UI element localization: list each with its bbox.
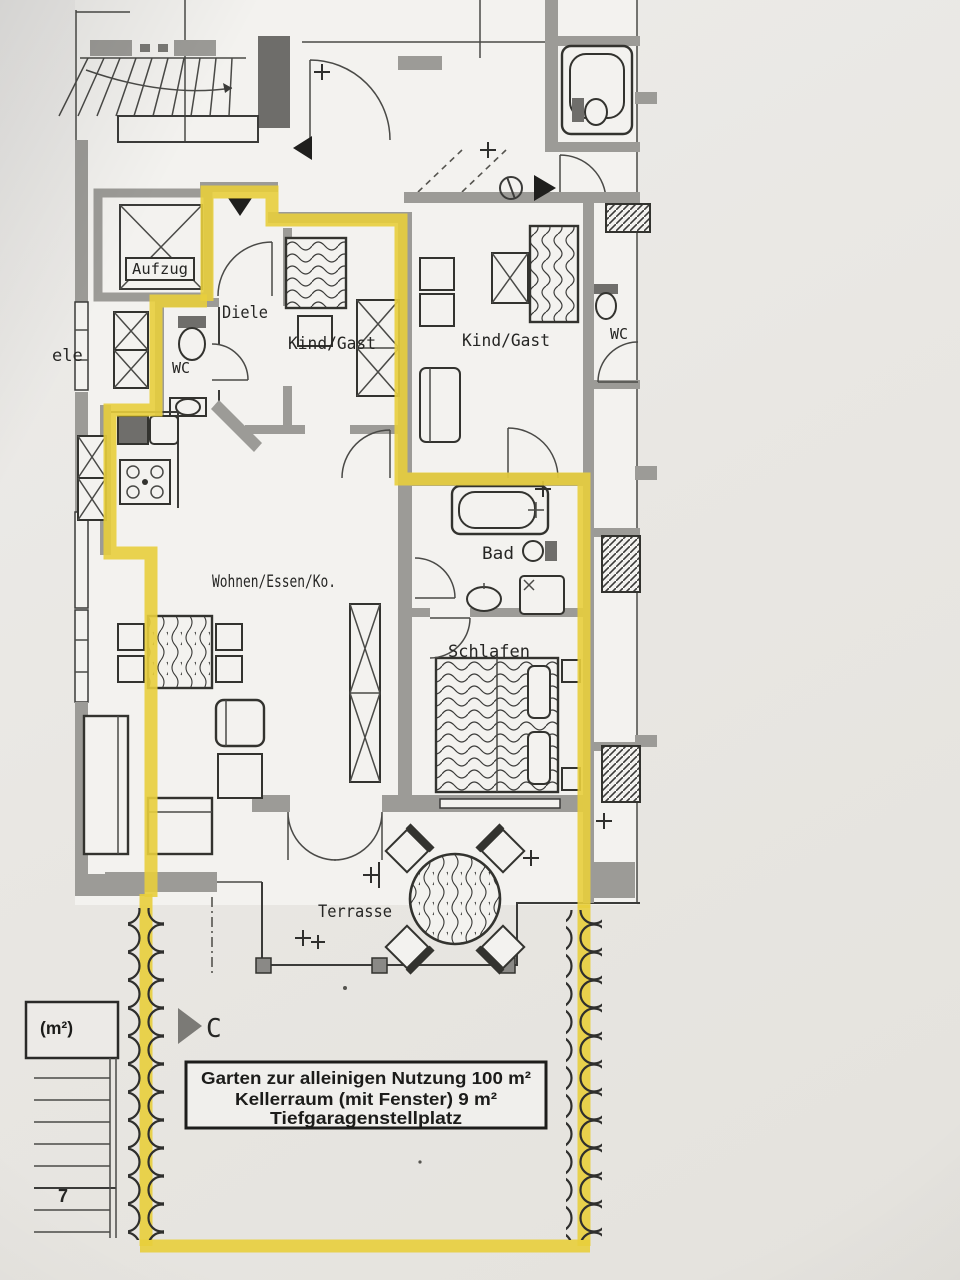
radiator-icon <box>602 536 640 592</box>
room-label-wc-left: WC <box>172 359 190 377</box>
stair-step-number: 7 <box>58 1186 68 1206</box>
info-box: Garten zur alleinigen Nutzung 100 m² Kel… <box>186 1062 546 1128</box>
round-table-icon <box>410 854 500 944</box>
info-line-tiefgarage: Tiefgaragenstellplatz <box>270 1108 462 1128</box>
schlafen-furniture <box>436 658 580 792</box>
room-label-neighbor-diele: ele <box>52 346 83 366</box>
room-label-terrasse: Terrasse <box>318 902 392 922</box>
sideboard-icon <box>350 604 380 782</box>
room-label-wc-right: WC <box>610 325 628 343</box>
section-triangle-icon <box>178 1008 202 1044</box>
floor-plan: Aufzug <box>0 0 960 1280</box>
outdoor-stairs: (m²) 7 <box>26 1002 118 1238</box>
kitchen-icons <box>111 412 178 508</box>
info-line-kellerraum: Kellerraum (mit Fenster) 9 m² <box>235 1089 497 1109</box>
room-label-schlafen: Schlafen <box>448 642 530 662</box>
room-label-bad: Bad <box>482 544 514 564</box>
room-label-diele: Diele <box>222 303 268 323</box>
coffee-table-icon <box>218 754 262 798</box>
bed-icon <box>530 226 578 322</box>
radiator-icon <box>602 746 640 802</box>
radiator-icon <box>606 204 650 232</box>
room-label-kind-gast-right: Kind/Gast <box>462 331 550 351</box>
info-line-garten: Garten zur alleinigen Nutzung 100 m² <box>201 1068 531 1088</box>
section-marker: C <box>178 1008 222 1044</box>
photographed-floor-plan: Aufzug <box>0 0 960 1280</box>
toilet-icon <box>572 98 607 125</box>
room-label-kind-gast-left: Kind/Gast <box>288 334 376 354</box>
section-letter: C <box>206 1014 222 1044</box>
partial-area-label: (m²) <box>40 1018 73 1038</box>
bed-icon <box>286 238 346 308</box>
room-label-aufzug: Aufzug <box>132 260 188 278</box>
room-label-wohnen: Wohnen/Essen/Ko. <box>212 572 336 592</box>
armchair-icon <box>216 700 264 746</box>
wardrobe-icon <box>492 253 528 303</box>
dining-table-icon <box>148 616 212 688</box>
